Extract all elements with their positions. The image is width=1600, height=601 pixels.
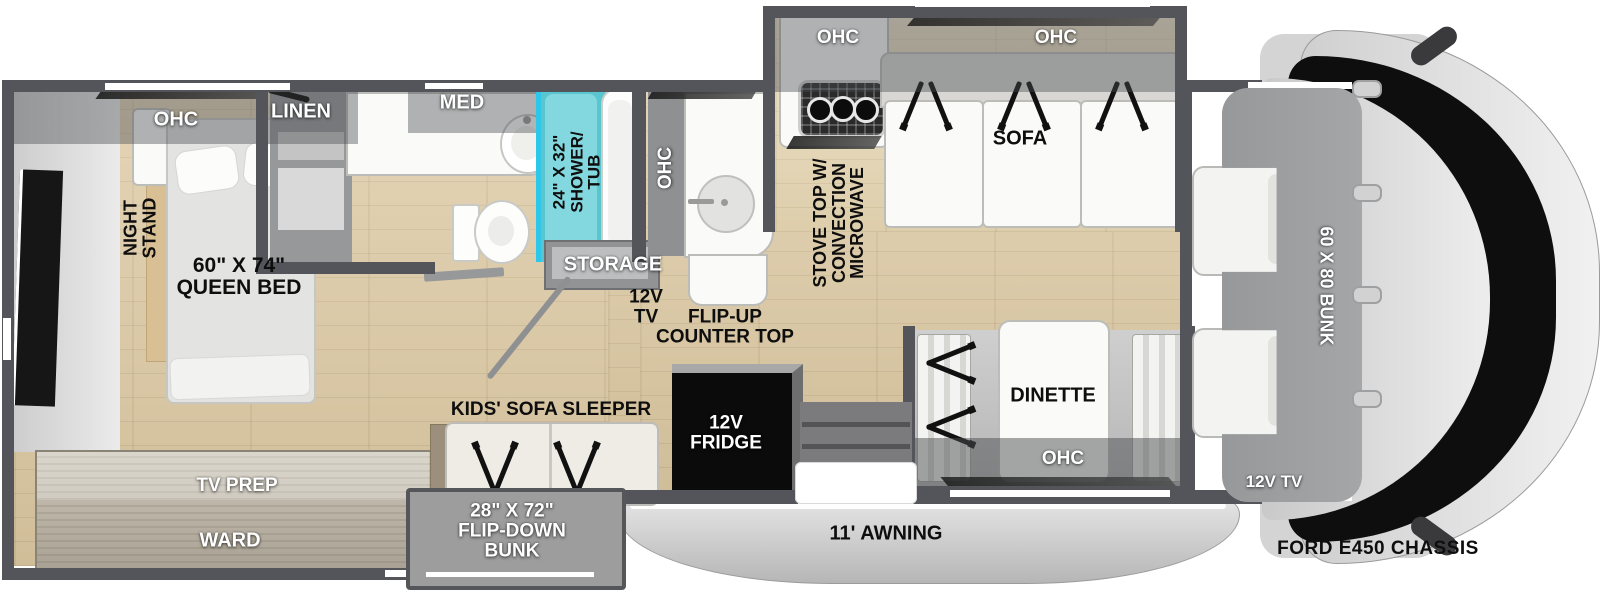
sofa-slide-wall-right bbox=[1175, 6, 1187, 232]
entry-steps bbox=[795, 462, 917, 504]
bunk-latch bbox=[1352, 184, 1382, 202]
entry-step-line bbox=[802, 444, 910, 449]
entry-landing bbox=[800, 402, 912, 464]
window bbox=[105, 83, 290, 90]
kitchen-ohc-top-label: OHC bbox=[817, 28, 859, 48]
linen-shelf bbox=[278, 168, 344, 230]
rv-floorplan-diagram: OHC NIGHTSTAND 60" X 74"QUEEN BED LINEN … bbox=[0, 0, 1600, 601]
seat-fold-mark bbox=[552, 440, 602, 494]
bunk-latch bbox=[1352, 286, 1382, 304]
seat-fold-mark bbox=[470, 440, 520, 494]
kitchen-faucet-icon bbox=[688, 199, 714, 204]
sofa-slide-wall-left bbox=[763, 6, 775, 232]
window bbox=[950, 490, 1170, 497]
night-stand-label: NIGHTSTAND bbox=[121, 198, 158, 259]
bed-foot-fold bbox=[169, 354, 310, 401]
sofa-label: SOFA bbox=[993, 129, 1047, 150]
shower-tub-label: 24" X 32"SHOWER/TUB bbox=[550, 131, 603, 212]
flip-up-counter bbox=[688, 254, 768, 306]
dinette-label: DINETTE bbox=[1010, 386, 1096, 407]
linen-label: LINEN bbox=[271, 102, 331, 123]
flip-down-bunk-trim bbox=[426, 572, 594, 577]
wall-bottom-left bbox=[612, 490, 798, 504]
tv-prep-label: TV PREP bbox=[196, 476, 277, 496]
bedroom-tv-icon bbox=[12, 169, 63, 406]
sofa-ohc-label: OHC bbox=[1035, 28, 1077, 48]
window bbox=[3, 318, 11, 360]
med-label: MED bbox=[440, 93, 484, 114]
stove-label: STOVE TOP W/CONVECTIONMICROWAVE bbox=[811, 158, 867, 287]
window bbox=[425, 83, 483, 89]
stove-lower-rail bbox=[786, 136, 882, 149]
toilet-bowl bbox=[488, 216, 514, 246]
storage-label: STORAGE bbox=[564, 255, 663, 276]
flip-down-bunk-label: 28" X 72"FLIP-DOWNBUNK bbox=[458, 501, 566, 560]
cab-bunk-label: 60 X 80 BUNK bbox=[1317, 226, 1336, 345]
seat-fold-mark bbox=[923, 340, 973, 386]
bedroom-ohc-label: OHC bbox=[154, 110, 198, 131]
cabover-bunk bbox=[1222, 88, 1362, 502]
kids-sofa-label: KIDS' SOFA SLEEPER bbox=[451, 400, 651, 420]
flip-up-counter-label: FLIP-UPCOUNTER TOP bbox=[656, 307, 794, 347]
tub-inner bbox=[608, 100, 632, 246]
kitchen-sink-drain bbox=[721, 199, 728, 206]
dinette-ohc-label: OHC bbox=[1042, 449, 1084, 469]
entry-step-line bbox=[802, 422, 910, 427]
window bbox=[1248, 82, 1352, 89]
pillow bbox=[173, 144, 241, 196]
awning-label: 11' AWNING bbox=[830, 524, 943, 545]
sofa-slide-wall-top bbox=[763, 6, 1187, 18]
queen-bed-label: 60" X 74"QUEEN BED bbox=[177, 255, 302, 299]
bunk-latch bbox=[1352, 80, 1382, 98]
wall-bedroom-bath bbox=[256, 92, 268, 272]
chassis-label: FORD E450 CHASSIS bbox=[1277, 539, 1479, 559]
bunk-latch bbox=[1352, 390, 1382, 408]
cab-tv-label: 12V TV bbox=[1246, 473, 1303, 491]
fridge-label: 12VFRIDGE bbox=[690, 413, 762, 453]
wall-bath-right bbox=[632, 80, 646, 262]
kitchen-ohc-label: OHC bbox=[656, 147, 676, 189]
window bbox=[915, 0, 1150, 7]
ward-label: WARD bbox=[199, 531, 260, 552]
shower-glass bbox=[536, 84, 541, 262]
